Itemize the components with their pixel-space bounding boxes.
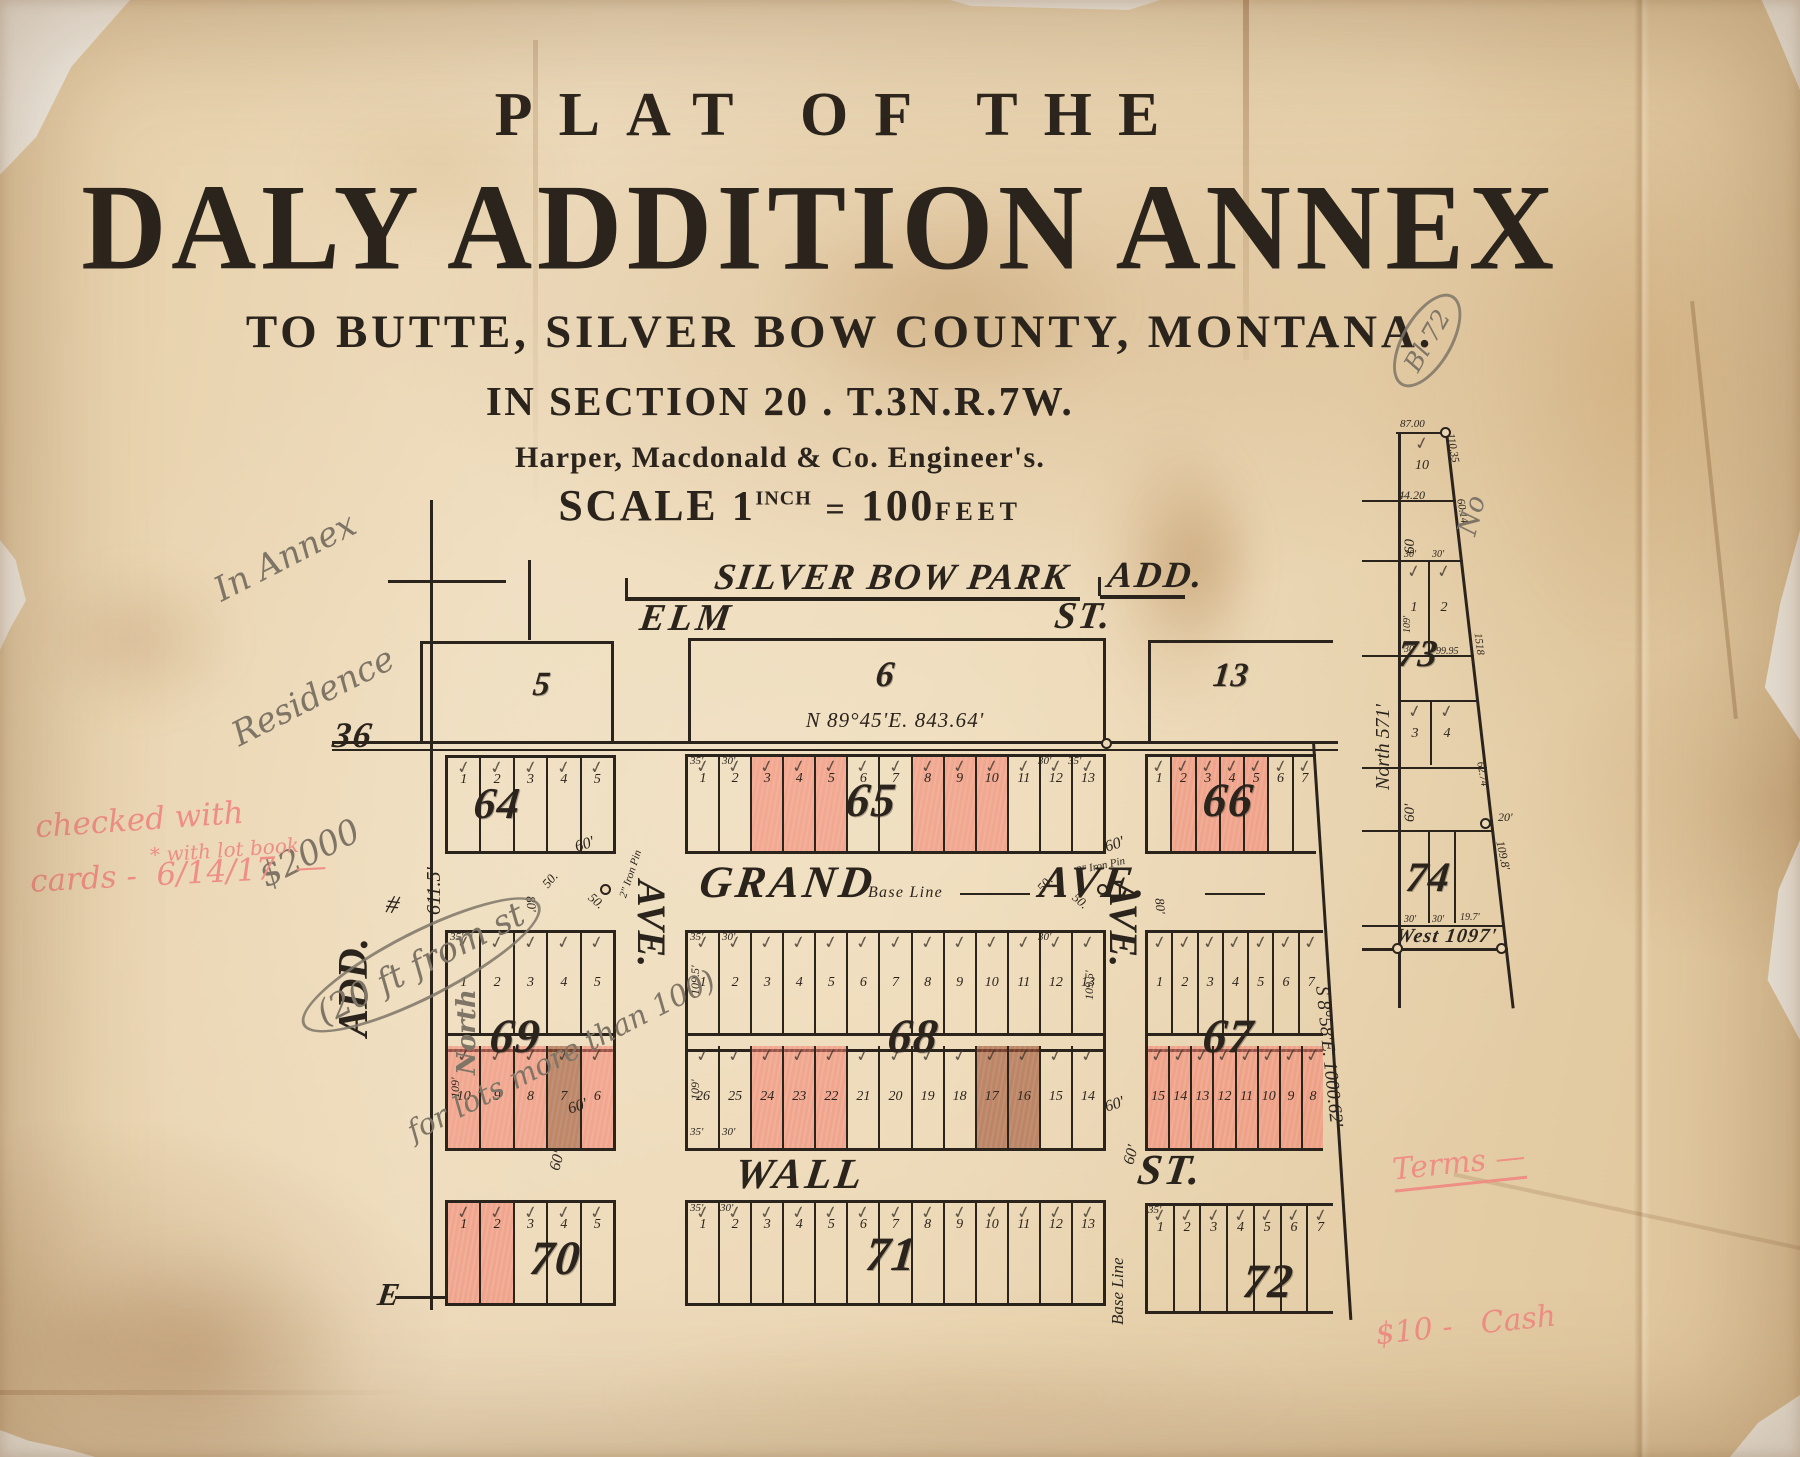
lot-24: 24	[752, 1046, 784, 1148]
torn-edge-left	[0, 540, 26, 650]
lot-14: 14	[1073, 1046, 1103, 1148]
dim-30: 30'	[1038, 755, 1051, 767]
dim-30: 30'	[1404, 914, 1416, 925]
survey-pin-dot	[1101, 738, 1112, 749]
dim-9995: 99.95	[1436, 646, 1459, 657]
lot-16: 16	[1009, 1046, 1041, 1148]
lot-number: 12	[1049, 771, 1063, 787]
lot-number: 10	[985, 1217, 999, 1233]
scale-value: 1	[732, 484, 756, 530]
dim-20: 20'	[1498, 810, 1513, 825]
block-65: 12345678910111213 65	[685, 754, 1106, 854]
lot-6: 6	[1269, 757, 1293, 851]
lot-number: 1	[700, 771, 707, 787]
dim-35: 35'	[690, 1126, 703, 1138]
block-67-number: 67	[1200, 1009, 1257, 1064]
scale-unit: FEET	[935, 497, 1022, 526]
lot-number: 12	[1049, 975, 1063, 991]
survey-pin-dot	[1496, 943, 1507, 954]
lot-1: 1	[1148, 757, 1172, 851]
lot-number: 6	[1290, 1220, 1297, 1236]
lot-5: 5	[816, 757, 848, 851]
torn-corner-top-right	[1752, 0, 1800, 90]
dim-35: 35'	[1068, 755, 1081, 767]
dim-60: 60'	[1103, 1093, 1127, 1116]
lot-number: 2	[732, 771, 739, 787]
lot-5: 5	[582, 1203, 613, 1303]
lot-2: 2	[1175, 1206, 1202, 1311]
lot-number: 19	[921, 1089, 935, 1105]
lot-number: 9	[956, 975, 963, 991]
fold-crease	[0, 1390, 420, 1395]
lot-number: 4	[796, 771, 803, 787]
lot-number: 2	[732, 1217, 739, 1233]
lot-number: 11	[1017, 1217, 1030, 1233]
block-71: 12345678910111213 71	[685, 1200, 1106, 1306]
lot-number: 10	[985, 771, 999, 787]
lot-11: 11	[1009, 933, 1041, 1033]
scale-number: 100	[861, 481, 935, 530]
silver-bow-park-label: SILVER BOW PARK	[712, 556, 1072, 599]
pencil-note-line: for lots more than 100)	[401, 961, 723, 1151]
block-73-number: 73	[1396, 632, 1441, 676]
lot-15: 15	[1148, 1046, 1170, 1148]
lot-3: 3	[752, 1203, 784, 1303]
block-72-number: 72	[1240, 1254, 1297, 1309]
dim-30: 30'	[1432, 549, 1444, 560]
lot-number: 3	[764, 771, 771, 787]
lot-number: 17	[985, 1089, 999, 1105]
lot-number: 5	[594, 1217, 601, 1233]
lot-number: 2	[1441, 600, 1448, 616]
paper-stain	[600, 1330, 1300, 1457]
survey-pin-dot	[1440, 427, 1451, 438]
block-72: 1234567 72	[1145, 1203, 1333, 1314]
lot-number: 13	[1081, 771, 1095, 787]
corner-tick-line	[395, 1296, 447, 1299]
base-line-dash	[960, 893, 1030, 895]
lot-number: 11	[1017, 975, 1030, 991]
torn-edge-right-2	[1764, 840, 1800, 1040]
base-line-label: Base Line	[868, 884, 943, 902]
section-line: IN SECTION 20 . T.3N.R.7W.	[0, 377, 1560, 425]
lot-number: 4	[1237, 1220, 1244, 1236]
dim-35: 35'	[690, 755, 703, 767]
lot-number: 8	[924, 1217, 931, 1233]
lot-number: 5	[828, 771, 835, 787]
north-571-label: North 571'	[1372, 600, 1395, 790]
lot-4: 4	[784, 933, 816, 1033]
dim-1518: 1518	[1472, 632, 1487, 655]
block-6-number: 6	[874, 653, 898, 695]
lot-number: 10	[985, 975, 999, 991]
lot-number: 3	[1207, 975, 1214, 991]
lot-10: 10	[1259, 1046, 1281, 1148]
lot-number: 5	[828, 1217, 835, 1233]
lot-number: 6	[1277, 771, 1284, 787]
page-title: DALY ADDITION ANNEX	[60, 157, 1580, 298]
lot-1: 1	[1148, 933, 1173, 1033]
lot-number: 7	[892, 975, 899, 991]
lot-number: 6	[1283, 975, 1290, 991]
lot-number: 4	[796, 975, 803, 991]
block-70-number: 70	[527, 1231, 584, 1286]
lot-13: 13	[1073, 757, 1103, 851]
lot-9: 9	[945, 933, 977, 1033]
survey-pin-dot	[1392, 943, 1403, 954]
lot-21: 21	[848, 1046, 880, 1148]
lot-12: 12	[1041, 933, 1073, 1033]
lot-number: 3	[1210, 1220, 1217, 1236]
lot-number: 12	[1049, 1217, 1063, 1233]
tear-line	[1690, 301, 1738, 719]
dim-30: 30'	[1038, 931, 1051, 943]
lot-10: 10	[977, 1203, 1009, 1303]
lot-number: 1	[1156, 771, 1163, 787]
block-67: 1234567 15141312111098 67	[1145, 930, 1323, 1151]
lot-number: 6	[860, 1217, 867, 1233]
lot-number: 8	[1309, 1089, 1316, 1105]
lot-4: 4	[784, 1203, 816, 1303]
block-68: 12345678910111213 2625242322212019181716…	[685, 930, 1106, 1151]
lot-number: 4	[1444, 726, 1451, 742]
lot-number: 1	[700, 1217, 707, 1233]
park-tick	[625, 578, 628, 598]
torn-edge-top	[950, 0, 1160, 10]
lot-number: 4	[1232, 975, 1239, 991]
lot-9: 9	[945, 757, 977, 851]
lot-number: 3	[1412, 726, 1419, 742]
paper-stain	[30, 1240, 360, 1457]
lot-1: 1	[688, 757, 720, 851]
lot-number: 11	[1240, 1089, 1253, 1105]
lot-1: 1	[1148, 1206, 1175, 1311]
page-title-prefix: PLAT OF THE	[0, 80, 1680, 151]
dim-109-5: 109.5'	[1082, 945, 1097, 1000]
lot-11: 11	[1009, 757, 1041, 851]
dim-30: 30'	[722, 931, 735, 943]
lot-number: 10	[1262, 1089, 1276, 1105]
lot-11: 11	[1009, 1203, 1041, 1303]
lot-6: 6	[1274, 933, 1299, 1033]
grand-avenue-label: GRAND	[696, 856, 879, 908]
lot-2: 2	[720, 1203, 752, 1303]
lots-strip: 34	[1400, 702, 1462, 765]
block-74-number: 74	[1403, 854, 1453, 902]
lot-number: 3	[764, 1217, 771, 1233]
lot-number: 23	[792, 1089, 806, 1105]
elm-st-label: ST.	[1052, 594, 1115, 638]
lot-number: 14	[1081, 1089, 1095, 1105]
lot-1: 1	[688, 1203, 720, 1303]
dim-197: 19.7'	[1460, 912, 1480, 923]
lot-2: 2	[1172, 757, 1196, 851]
terms-line: $5 - moly	[1390, 1451, 1576, 1457]
lot-18: 18	[945, 1046, 977, 1148]
lot-number: 7	[1317, 1220, 1324, 1236]
terms-line: $10 - Cash	[1373, 1290, 1559, 1363]
lot-number: 1	[1156, 975, 1163, 991]
lot-number: 24	[760, 1089, 774, 1105]
park-add-label: ADD.	[1105, 554, 1207, 597]
lot-number: 5	[1257, 975, 1264, 991]
lot-number: 20	[889, 1089, 903, 1105]
block-73-lower-lots: 34	[1400, 702, 1462, 765]
dim-35: 35'	[1148, 1204, 1161, 1216]
dim-60: 60	[1402, 510, 1419, 554]
dim-35: 35'	[690, 1202, 703, 1214]
lot-8: 8	[913, 1203, 945, 1303]
lot-12: 12	[1041, 1203, 1073, 1303]
pencil-bl72-circled: Bl 72	[1379, 283, 1475, 399]
torn-corner-bottom-right	[1730, 1395, 1800, 1457]
lot-number: 12	[1217, 1089, 1231, 1105]
base-line-vertical-label: Base Line	[1108, 1185, 1128, 1325]
lot-4: 4	[1432, 702, 1462, 765]
lot-10: 10	[977, 933, 1009, 1033]
lot-number: 11	[1017, 771, 1030, 787]
block-13: 13	[1148, 640, 1333, 744]
lot-number: 9	[1287, 1089, 1294, 1105]
dim-30: 30'	[722, 1126, 735, 1138]
pencil-note-line: Residence	[225, 574, 528, 759]
dim-80: 80'	[1151, 897, 1168, 914]
block-74-lot-line	[1454, 832, 1456, 923]
lot-number: 16	[1017, 1089, 1031, 1105]
lot-number: 2	[1184, 1220, 1191, 1236]
lot-number: 2	[732, 975, 739, 991]
fold-crease	[1634, 0, 1650, 1457]
block-66-number: 66	[1200, 773, 1257, 828]
lot-5: 5	[816, 933, 848, 1033]
lot-number: 1	[1157, 1220, 1164, 1236]
block-13-number: 13	[1211, 657, 1251, 695]
lot-number: 21	[856, 1089, 870, 1105]
lot-number: 2	[494, 1217, 501, 1233]
lot-number: 9	[956, 771, 963, 787]
block-65-number: 65	[843, 773, 900, 828]
scale-equals: =	[825, 491, 847, 528]
elm-street-label: ELM	[637, 596, 737, 640]
lot-2: 2	[720, 757, 752, 851]
wall-street-label: WALL	[732, 1150, 869, 1199]
lot-12: 12	[1041, 757, 1073, 851]
lot-10: 10	[977, 757, 1009, 851]
lot-number: 2	[1181, 975, 1188, 991]
pencil-note-line: In Annex	[207, 451, 466, 613]
lot-3: 3	[1400, 702, 1432, 765]
lot-3: 3	[1201, 1206, 1228, 1311]
lot-number: 14	[1173, 1089, 1187, 1105]
lot-14: 14	[1170, 1046, 1192, 1148]
dim-30: 30'	[1404, 549, 1416, 560]
avenue-2-label: AVE.	[1100, 880, 1147, 1040]
lot-number: 15	[1049, 1089, 1063, 1105]
block-68-number: 68	[885, 1009, 942, 1064]
block-71-number: 71	[863, 1227, 920, 1282]
lot-3: 3	[752, 757, 784, 851]
survey-pin-dot	[1480, 818, 1491, 829]
dim-6274: 62.74	[1474, 761, 1490, 787]
lot-number: 13	[1195, 1089, 1209, 1105]
plat-map-scan: PLAT OF THE DALY ADDITION ANNEX TO BUTTE…	[0, 0, 1800, 1457]
lot-15: 15	[1041, 1046, 1073, 1148]
torn-corner-bottom-left	[0, 1430, 95, 1457]
west-1097-label: West 1097'	[1394, 925, 1498, 948]
lot-number: 2	[1180, 771, 1187, 787]
lot-5: 5	[816, 1203, 848, 1303]
lot-22: 22	[816, 1046, 848, 1148]
dim-60: 60'	[1402, 778, 1419, 822]
lot-6: 6	[848, 933, 880, 1033]
lot-number: 13	[1081, 1217, 1095, 1233]
lot-23: 23	[784, 1046, 816, 1148]
iron-pin-dot	[1097, 884, 1108, 895]
pink-terms-note: Terms — $10 - Cash $5 - moly 10 % Int ab…	[1345, 1021, 1621, 1457]
lot-17: 17	[977, 1046, 1009, 1148]
dim-4420: 44.20	[1398, 488, 1425, 503]
terms-heading: Terms —	[1391, 1139, 1528, 1193]
lot-number: 6	[860, 975, 867, 991]
lot-number: 8	[924, 975, 931, 991]
scale-inch: INCH	[756, 487, 812, 509]
lot-3: 3	[752, 933, 784, 1033]
wall-st-label: ST.	[1135, 1146, 1207, 1195]
corner-e-label: E	[375, 1276, 403, 1313]
lot-number: 5	[1264, 1220, 1271, 1236]
dim-30: 30'	[1432, 914, 1444, 925]
lot-4: 4	[784, 757, 816, 851]
lot-number: 4	[796, 1217, 803, 1233]
lot-9: 9	[945, 1203, 977, 1303]
lot-13: 13	[1073, 1203, 1103, 1303]
lot-number: 3	[764, 975, 771, 991]
block-66: 1234567 66	[1145, 754, 1316, 854]
dim-60: 60'	[1103, 833, 1127, 856]
torn-edge-right-1	[1756, 530, 1800, 740]
north-bearing-label: N 89°45'E. 843.64'	[735, 708, 1055, 733]
strip-line	[1362, 948, 1508, 951]
lot-number: 8	[924, 771, 931, 787]
lot-9: 9	[1281, 1046, 1303, 1148]
lot-number: 15	[1151, 1089, 1165, 1105]
lot-number: 7	[1301, 771, 1308, 787]
lot-number: 5	[828, 975, 835, 991]
dim-30: 30'	[722, 755, 735, 767]
lot-7: 7	[1308, 1206, 1333, 1311]
base-line-dash	[1205, 893, 1265, 895]
lot-2: 2	[1173, 933, 1198, 1033]
pencil-note-circled: (20 ft from st	[287, 874, 555, 1055]
dim-30: 30'	[720, 1202, 733, 1214]
lot-7: 7	[1294, 757, 1316, 851]
lot-8: 8	[913, 757, 945, 851]
lot-number: 9	[956, 1217, 963, 1233]
lot-number: 18	[953, 1089, 967, 1105]
dim-109: 109'	[1402, 585, 1413, 633]
lot-number: 22	[824, 1089, 838, 1105]
scale-word: SCALE	[558, 481, 718, 530]
